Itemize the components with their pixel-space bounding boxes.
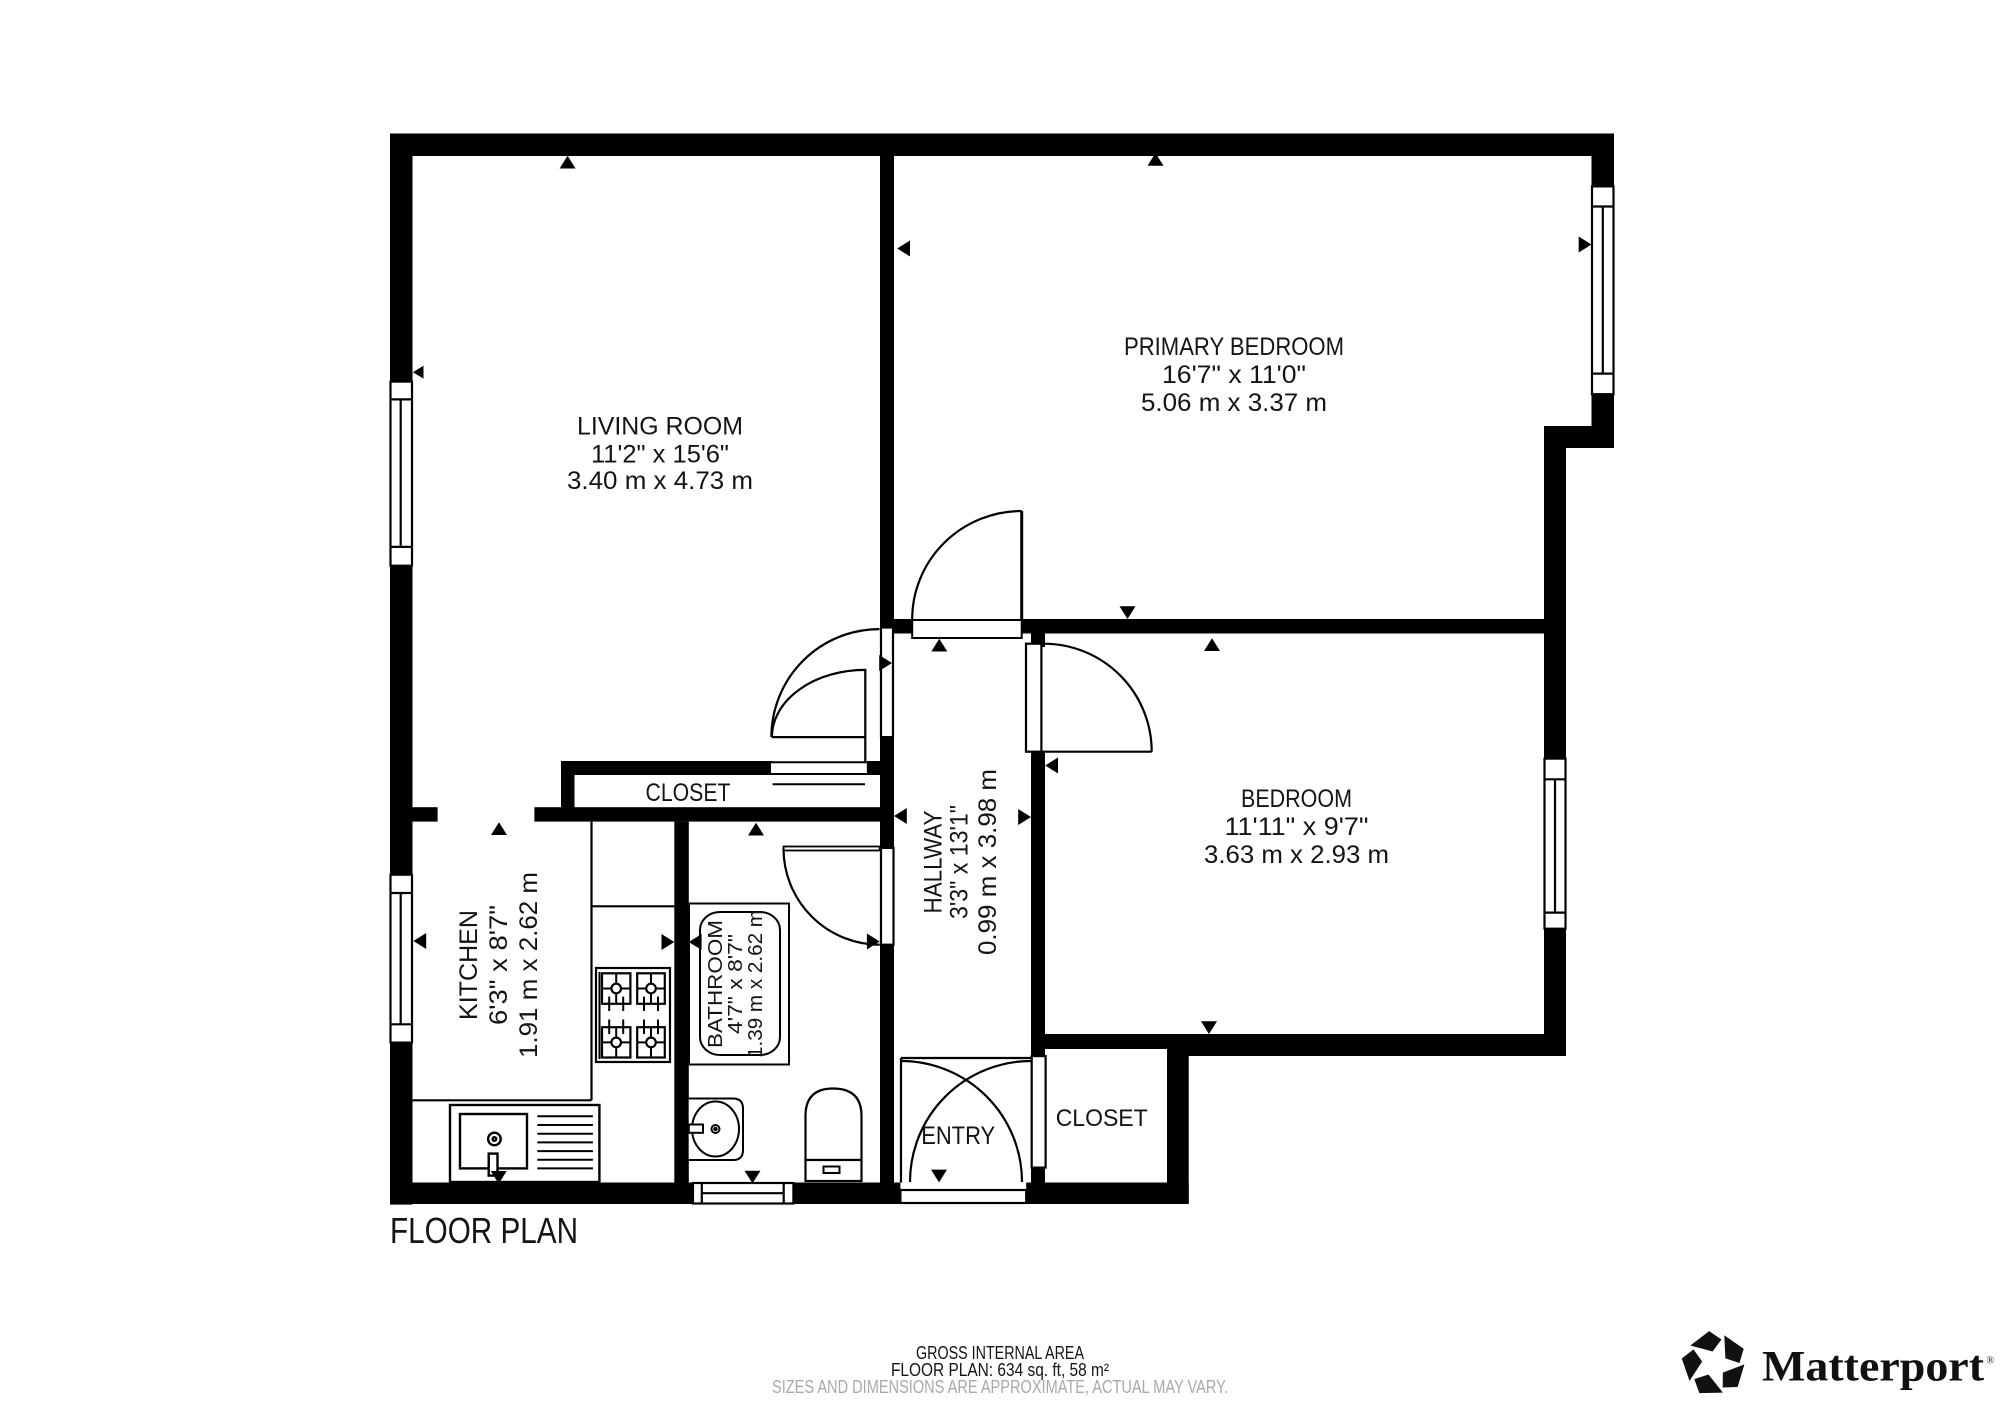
svg-text:SIZES AND DIMENSIONS ARE APPRO: SIZES AND DIMENSIONS ARE APPROXIMATE, AC…: [772, 1377, 1228, 1397]
svg-text:3'3" x 13'1": 3'3" x 13'1": [946, 805, 974, 919]
svg-text:4'7" x 8'7": 4'7" x 8'7": [725, 934, 747, 1034]
svg-text:3.40 m x 4.73 m: 3.40 m x 4.73 m: [567, 467, 753, 495]
svg-text:ENTRY: ENTRY: [921, 1122, 995, 1150]
svg-text:Matterport: Matterport: [1762, 1343, 1985, 1390]
svg-text:PRIMARY BEDROOM: PRIMARY BEDROOM: [1124, 333, 1344, 361]
svg-text:KITCHEN: KITCHEN: [455, 910, 483, 1020]
svg-text:11'11" x 9'7": 11'11" x 9'7": [1225, 813, 1369, 841]
svg-text:3.63 m x 2.93 m: 3.63 m x 2.93 m: [1204, 841, 1389, 869]
svg-text:6'3" x 8'7": 6'3" x 8'7": [485, 905, 513, 1025]
svg-text:1.39 m x 2.62 m: 1.39 m x 2.62 m: [745, 910, 767, 1058]
svg-text:16'7" x 11'0": 16'7" x 11'0": [1162, 361, 1306, 389]
svg-text:FLOOR PLAN: FLOOR PLAN: [390, 1210, 578, 1251]
svg-text:11'2" x 15'6": 11'2" x 15'6": [591, 441, 729, 469]
svg-text:5.06 m x 3.37 m: 5.06 m x 3.37 m: [1141, 389, 1327, 417]
svg-text:0.99 m x 3.98 m: 0.99 m x 3.98 m: [974, 769, 1002, 955]
svg-text:BEDROOM: BEDROOM: [1241, 785, 1352, 813]
svg-text:®: ®: [1987, 1356, 1995, 1367]
svg-text:HALLWAY: HALLWAY: [920, 810, 948, 913]
svg-text:LIVING ROOM: LIVING ROOM: [577, 413, 743, 441]
svg-text:CLOSET: CLOSET: [1056, 1105, 1148, 1132]
svg-text:BATHROOM: BATHROOM: [705, 920, 727, 1048]
svg-text:1.91 m x 2.62 m: 1.91 m x 2.62 m: [515, 872, 543, 1058]
svg-text:CLOSET: CLOSET: [646, 779, 731, 807]
